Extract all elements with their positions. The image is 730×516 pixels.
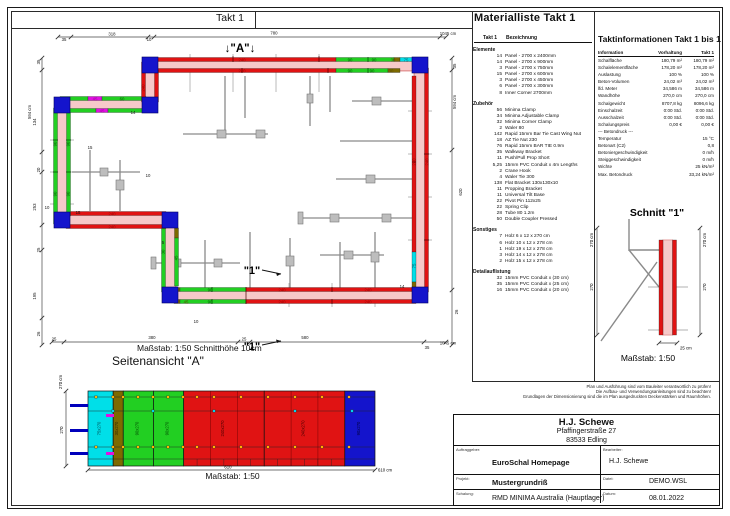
panel-label: 30 <box>389 69 394 74</box>
file-value: DEMO.WSL <box>649 478 687 485</box>
panel-label: 90 <box>53 141 58 146</box>
section-marker-1-upper: "1" <box>244 265 261 277</box>
panel-label: 60 <box>120 97 125 102</box>
takt-info-row: Temperatur15 °C <box>598 135 714 142</box>
project-label: Projekt: <box>456 476 470 481</box>
dim-label: 10 <box>45 205 50 210</box>
section-arrow-a-marker: ↓"A"↓ <box>225 43 256 55</box>
formwork-label: Schalung: <box>456 491 474 496</box>
takt-info-row: Schalungspreis0,00 €0,00 € <box>598 121 714 128</box>
dim-label: 20 <box>36 167 41 172</box>
takt-info-col-information: Information <box>598 50 650 55</box>
takt-info-row: Wichte25 kN/m³ <box>598 163 714 170</box>
dim-label: 134 <box>32 118 37 126</box>
company-name: H.J. Schewe <box>454 415 719 428</box>
dim-label: 1045 cm <box>440 341 457 346</box>
material-list-body: Elemente14Panel - 2700 x 2400mm14Panel -… <box>474 47 592 294</box>
dim-label: 380 <box>148 335 156 340</box>
file-cell: Datei: DEMO.WSL <box>601 475 719 490</box>
panel-label: 45 <box>93 97 98 102</box>
takt-info-header: Information Vorhaltung Takt 1 <box>598 50 714 57</box>
client-value: EuroSchal Homepage <box>492 458 570 467</box>
material-list-header: Takt 1 Bezeichnung <box>474 35 592 43</box>
inner-corner-piece <box>412 57 428 73</box>
dim-label: 10 <box>147 37 152 42</box>
inner-corner-piece <box>54 97 70 113</box>
takt-info-title: Taktinformationen Takt 1 bis 1 <box>598 34 714 44</box>
material-list-col-desc: Bezeichnung <box>506 35 592 41</box>
plan-drawing: 2402409090309090307524024075240240240240… <box>27 31 463 350</box>
panel-label: 90 <box>372 58 377 63</box>
date-value: 08.01.2022 <box>649 495 684 502</box>
date-cell: Datum: 08.01.2022 <box>601 490 719 503</box>
dim-label: 580 <box>301 335 309 340</box>
takt-info-col-vorhaltung: Vorhaltung <box>650 50 682 55</box>
panel-label: 90 <box>208 288 213 293</box>
title-block: H.J. Schewe Pfaffingerstraße 27 83533 Ed… <box>453 414 720 506</box>
elevation-panel-label: 90x270 <box>356 421 361 435</box>
dim-label: 253 <box>32 203 37 211</box>
inner-corner-piece <box>162 287 178 303</box>
takt-info-row: Schalgewicht8707,8 kg8096,6 kg <box>598 100 714 107</box>
material-group-label: Zubehör <box>473 101 592 107</box>
panel-label: 45 <box>184 300 189 305</box>
material-row: 8Inner Corner 2700mm <box>474 91 592 97</box>
dim-label: 195 <box>32 292 37 300</box>
inner-corner-piece <box>412 287 428 303</box>
dim-label: 270 cm <box>58 375 63 390</box>
dim-label: 10 <box>194 319 199 324</box>
elevation-panel-label: 90x270 <box>134 421 139 435</box>
title-block-company: H.J. Schewe Pfaffingerstraße 27 83533 Ed… <box>454 415 719 446</box>
section-caption: Maßstab: 1:50 <box>621 353 676 363</box>
project-cell: Projekt: Mustergrundriß <box>454 475 600 490</box>
panel-label: 240 <box>364 288 372 293</box>
material-row: 1615mm PVC Conduit x (20 cm) <box>474 288 592 294</box>
panel-label: 90 <box>66 191 71 196</box>
editor-value: H.J. Schewe <box>609 458 648 465</box>
client-cell: Auftraggeber: EuroSchal Homepage <box>454 446 600 475</box>
plan-caption: Maßstab: 1:50 Schnitthöhe 10cm <box>137 343 262 353</box>
dim-label: 14 <box>131 110 136 115</box>
panel-label: 240 <box>425 158 430 166</box>
panel-label: 30 <box>161 249 166 254</box>
panel-label: 45 <box>100 109 105 114</box>
panel-label: 240 <box>238 58 246 63</box>
material-group-label: Detailauflistung <box>473 269 592 275</box>
takt-info-col-takt1: Takt 1 <box>682 50 714 55</box>
takt-info-row: Beton-Volumen24,02 m³24,02 m³ <box>598 78 714 85</box>
takt-info-body: Schalfläche180,79 m²180,79 m²Schalelemen… <box>598 57 714 178</box>
formwork-cell: Schalung: RMD MINIMA Australia (Hauptlag… <box>454 490 600 503</box>
dim-label: 620 <box>458 188 463 196</box>
elevation-panel-label: 90x270 <box>165 421 170 435</box>
panel-label: 90 <box>208 300 213 305</box>
panel-label: 75 <box>404 58 409 63</box>
dim-label: 25 <box>36 247 41 252</box>
panel-label: 240 <box>108 212 116 217</box>
formwork-plan-sheet: Takt 1 240240909030909030752402407524024… <box>0 0 730 516</box>
editor-cell: Bearbeiter: H.J. Schewe <box>601 446 719 475</box>
material-list: Materialliste Takt 1 Takt 1 Bezeichnung … <box>474 12 592 294</box>
material-row: 2Holz 15 x 12 x 278 cm <box>474 259 592 265</box>
dim-label: 610 <box>224 464 232 469</box>
panel-label: 90 <box>66 141 71 146</box>
panel-label: 75 <box>412 263 417 268</box>
inner-corner-piece <box>142 57 158 73</box>
panel-label: 240 <box>141 84 146 92</box>
dim-label: 270 <box>59 426 64 434</box>
dim-label: 25 <box>52 337 57 342</box>
material-row: 50Double Coupler Pressed <box>474 217 592 223</box>
elevation-drawing: 75x27030x27090x27090x270240x270240x27090… <box>58 375 393 473</box>
takt-info-row: Auslastung100 %100 % <box>598 71 714 78</box>
elevation-panel-label: 240x270 <box>220 420 225 437</box>
elevation-title: Seitenansicht "A" <box>112 354 204 368</box>
dim-label: 15 <box>76 210 81 215</box>
panel-label: 240 <box>278 288 286 293</box>
takt-info-row: Ausschalzeit0:00 Std.0:00 Std. <box>598 114 714 121</box>
panel-label: 90 <box>348 69 353 74</box>
inner-corner-piece <box>54 212 70 228</box>
panel-label: 30 <box>391 58 396 63</box>
dim-label: 35 <box>452 63 457 68</box>
project-value: Mustergrundriß <box>492 478 547 487</box>
takt-info-row: Max. Betondruck33,24 kN/m² <box>598 171 714 178</box>
takt-info-row: Schalfläche180,79 m²180,79 m² <box>598 57 714 64</box>
dim-label: 594 cm <box>452 95 457 110</box>
takt-info-row: Wandhöhe270,0 cm270,0 cm <box>598 92 714 99</box>
dim-label: 35 <box>425 345 430 350</box>
takt-info-row: --- Betondruck --- <box>598 128 714 135</box>
panel-label: 240 <box>364 300 372 305</box>
elevation-panel-label: 240x270 <box>301 420 306 437</box>
panel-label: 90 <box>53 191 58 196</box>
dim-label: 780 <box>270 31 278 36</box>
dim-label: 35 <box>62 37 67 42</box>
inner-corner-piece <box>142 97 158 113</box>
material-list-title: Materialliste Takt 1 <box>474 12 592 24</box>
material-list-col-qty: Takt 1 <box>474 35 506 41</box>
disclaimer-line: Grundlagen der Dimensionierung sind die … <box>430 394 711 399</box>
material-group-label: Sonstiges <box>473 227 592 233</box>
takt-info-row: Steiggeschwindigkeit0 m/h <box>598 156 714 163</box>
dim-label: 15 <box>88 145 93 150</box>
editor-label: Bearbeiter: <box>603 447 623 452</box>
takt-info-row: lfd. Meter34,586 m34,586 m <box>598 85 714 92</box>
panel-label: 90 <box>370 69 375 74</box>
company-street: Pfaffingerstraße 27 <box>454 428 719 437</box>
panel-label: 240 <box>412 158 417 166</box>
dim-label: 594 cm <box>27 105 32 120</box>
date-label: Datum: <box>603 491 616 496</box>
inner-corner-piece <box>162 212 178 228</box>
elevation-caption: Maßstab: 1:50 <box>150 471 315 481</box>
takt-info-row: Einschalzeit0:00 Std.0:00 Std. <box>598 107 714 114</box>
dim-label: 10 <box>146 173 151 178</box>
elevation-panel-label: 75x270 <box>97 421 102 435</box>
dim-label: 318 <box>108 32 116 37</box>
panel-label: 45 <box>174 255 179 260</box>
file-label: Datei: <box>603 476 613 481</box>
panel-label: 240 <box>238 69 246 74</box>
company-city: 83533 Edling <box>454 437 719 446</box>
takt-info-row: Schalelementfläche178,20 m²178,20 m² <box>598 64 714 71</box>
dim-label: 610 cm <box>378 467 393 472</box>
panel-label: 240 <box>278 300 286 305</box>
disclaimer-notes: Plan und Ausführung sind vom Bauleiter v… <box>430 384 711 399</box>
dim-label: 14 <box>400 284 405 289</box>
panel-label: 240 <box>108 225 116 230</box>
dim-label: 270 cm <box>702 233 707 248</box>
formwork-value: RMD MINIMA Australia (Hauptlager) <box>492 495 604 502</box>
material-group-label: Elemente <box>473 47 592 53</box>
section-drawing: Schnitt "1" Maßstab: 1:50 270 cm270270 c… <box>589 207 707 363</box>
takt-info-table: Taktinformationen Takt 1 bis 1 Informati… <box>598 34 714 178</box>
takt-info-row: Betoniergeschwindigkeit0 m/h <box>598 149 714 156</box>
section-title: Schnitt "1" <box>630 207 684 219</box>
panel-label: 90 <box>348 58 353 63</box>
client-label: Auftraggeber: <box>456 447 480 452</box>
dim-label: 26 <box>454 309 459 314</box>
dim-label: 35 <box>36 59 41 64</box>
dim-label: 25 cm <box>680 346 692 351</box>
dim-label: 1045 cm <box>440 31 457 36</box>
elevation-panel-label: 30x270 <box>114 421 119 435</box>
dim-label: 26 <box>36 331 41 336</box>
dim-label: 270 <box>702 283 707 291</box>
takt-info-row: Betonart (C2)0,8 <box>598 142 714 149</box>
